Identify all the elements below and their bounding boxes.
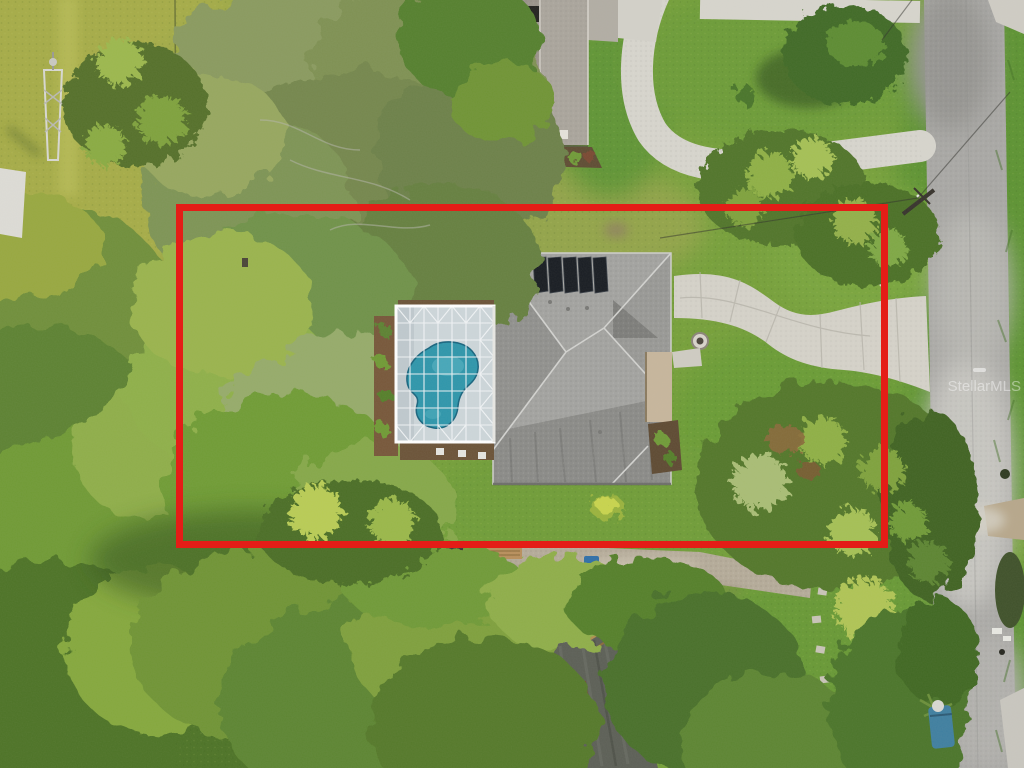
photo-grain: [0, 0, 1024, 768]
aerial-photo: StellarMLS: [0, 0, 1024, 768]
watermark-text: StellarMLS: [948, 378, 1021, 395]
watermark-logo-dash: [973, 368, 986, 372]
aerial-scene: StellarMLS: [0, 0, 1024, 768]
